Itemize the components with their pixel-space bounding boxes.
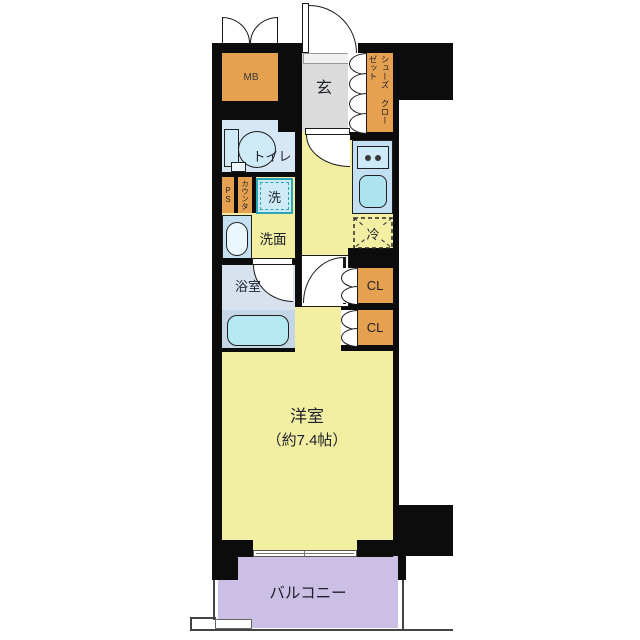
closet-upper-doors <box>341 268 357 303</box>
washroom-label: 洗面 <box>250 228 296 247</box>
closet-lower-label: CL <box>367 320 384 335</box>
wall <box>398 556 406 580</box>
genkan-door-leaf-icon <box>305 128 350 135</box>
counter-label: カウンタ <box>240 180 251 210</box>
folding-door-arc-icon <box>341 328 358 347</box>
closet-upper-box: CL <box>357 268 393 303</box>
stove-burner-icon <box>375 155 381 161</box>
balcony-railing <box>402 580 404 631</box>
shoe-closet-doors <box>348 53 366 132</box>
shoe-closet-box: シューズ クローゼット <box>366 53 393 132</box>
folding-door-arc-icon <box>349 73 367 95</box>
wall <box>212 101 302 120</box>
shoe-closet-label: シューズ クローゼット <box>367 55 391 131</box>
folding-door-arc-icon <box>341 310 358 330</box>
entrance-door-leaf-icon <box>302 3 309 53</box>
kitchen-sink-icon <box>359 175 387 208</box>
bathroom-label: 浴室 <box>227 276 269 294</box>
stove-burner-icon <box>365 155 371 161</box>
meterbox-door-arc-icon <box>222 17 250 43</box>
main-room-size-label: （約7.4帖） <box>237 429 377 449</box>
washing-machine-icon: 洗 <box>256 178 293 214</box>
folding-door-arc-icon <box>349 93 367 115</box>
fridge-label: 冷 <box>353 217 393 249</box>
floor-plan-image: MB PS カウンタ シューズ クローゼット CL CL <box>0 0 640 640</box>
meter-box: MB <box>222 53 280 101</box>
sliding-window-icon <box>253 550 357 557</box>
bathroom-door-opening <box>252 258 293 265</box>
wall <box>393 100 399 556</box>
balcony-railing <box>190 629 453 631</box>
folding-door-arc-icon <box>349 53 367 75</box>
closet-lower-box: CL <box>357 310 393 345</box>
washbasin-icon <box>226 222 248 256</box>
folding-door-arc-icon <box>349 113 367 134</box>
wall <box>348 132 393 140</box>
bathtub-icon <box>227 315 289 346</box>
wall <box>212 540 238 580</box>
washer-label: 洗 <box>258 180 291 212</box>
balcony-railing <box>213 580 215 620</box>
closet-upper-label: CL <box>367 278 384 293</box>
toilet-label: トイレ <box>248 146 296 164</box>
wall <box>357 540 393 557</box>
pipe-space-label: PS <box>224 186 233 204</box>
wall <box>234 177 238 213</box>
refrigerator-icon: 冷 <box>353 217 393 249</box>
toilet-flush-icon <box>231 162 246 172</box>
wall <box>393 43 453 100</box>
wall <box>222 348 295 352</box>
counter-box: カウンタ <box>238 177 252 213</box>
balcony-step <box>215 619 252 629</box>
folding-door-arc-icon <box>341 268 358 288</box>
closet-lower-doors <box>341 310 357 345</box>
wall <box>341 345 393 351</box>
wall <box>348 248 393 268</box>
pipe-space-box: PS <box>222 177 234 213</box>
meterbox-door-arc-icon <box>250 17 278 43</box>
genkan-label: 玄 <box>300 75 348 97</box>
balcony-label: バルコニー <box>238 582 378 602</box>
entrance-door-arc-icon <box>309 5 357 53</box>
balcony-railing <box>190 617 216 619</box>
meter-box-label: MB <box>244 72 259 83</box>
stove-icon <box>357 146 389 169</box>
wall <box>393 505 453 556</box>
folding-door-arc-icon <box>341 286 358 305</box>
wall <box>212 43 222 580</box>
main-room-label: 洋室 <box>237 403 377 425</box>
